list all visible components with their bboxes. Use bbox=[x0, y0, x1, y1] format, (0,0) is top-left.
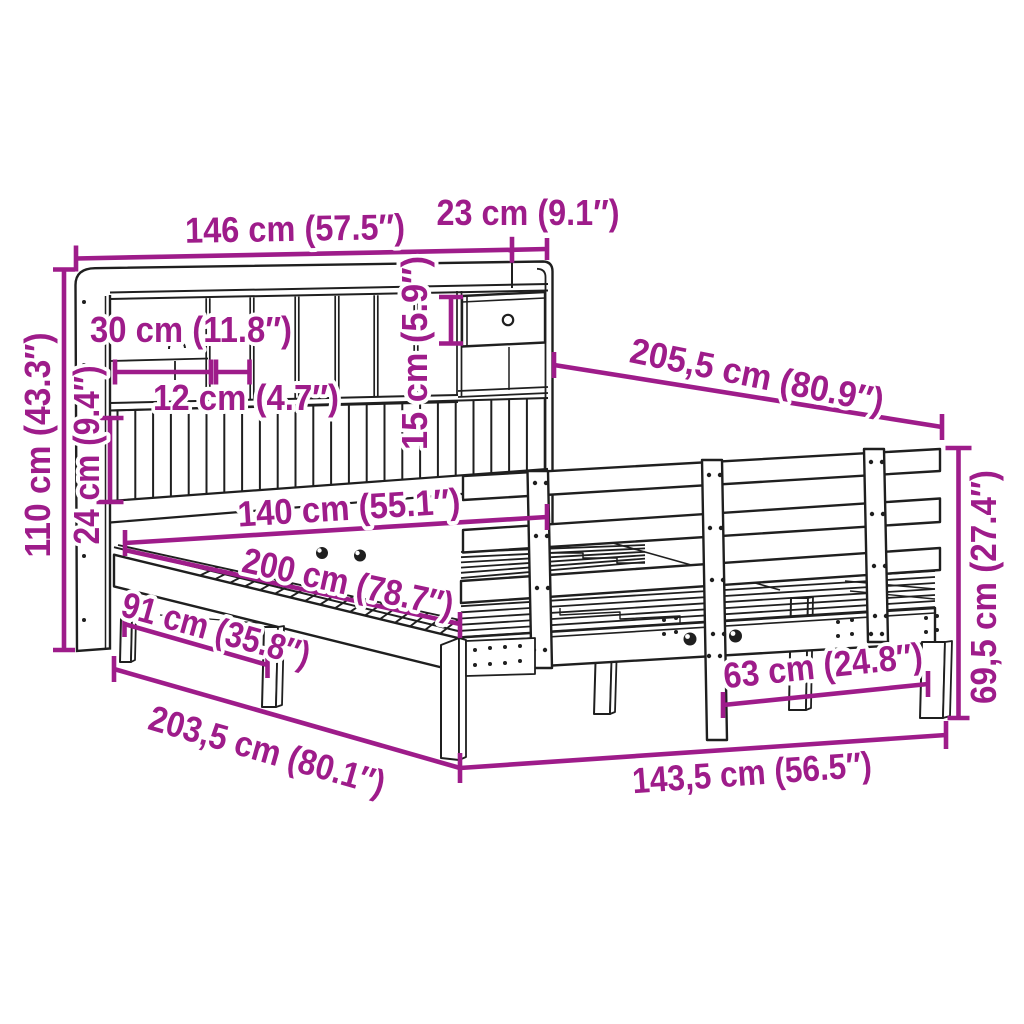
svg-text:15 cm (5.9″): 15 cm (5.9″) bbox=[394, 256, 435, 450]
svg-text:30 cm (11.8″): 30 cm (11.8″) bbox=[90, 309, 292, 350]
svg-text:24 cm (9.4″): 24 cm (9.4″) bbox=[66, 366, 107, 545]
svg-text:69,5 cm (27.4″): 69,5 cm (27.4″) bbox=[963, 470, 1004, 704]
svg-text:12 cm (4.7″): 12 cm (4.7″) bbox=[153, 377, 339, 418]
svg-text:146 cm (57.5″): 146 cm (57.5″) bbox=[185, 206, 406, 251]
svg-text:23 cm (9.1″): 23 cm (9.1″) bbox=[437, 192, 620, 233]
svg-text:110 cm (43.3″): 110 cm (43.3″) bbox=[17, 333, 58, 558]
